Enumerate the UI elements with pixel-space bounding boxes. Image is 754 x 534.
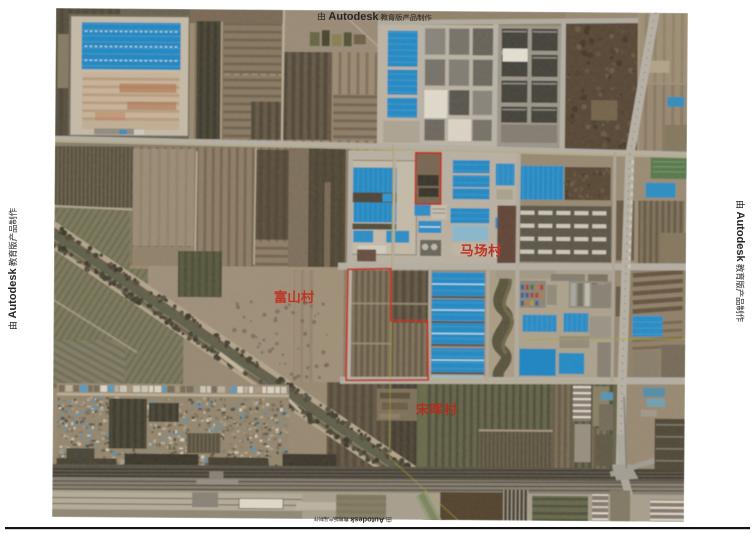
svg-text:由 Autodesk 教育版产品制作: 由 Autodesk 教育版产品制作 — [317, 11, 432, 24]
svg-text:马场村: 马场村 — [460, 242, 502, 258]
svg-text:由 Autodesk 教育版产品制作: 由 Autodesk 教育版产品制作 — [7, 207, 19, 330]
svg-text:宋晖村: 宋晖村 — [415, 402, 458, 417]
svg-text:由 Autodesk 教育版产品制作: 由 Autodesk 教育版产品制作 — [734, 200, 746, 323]
svg-text:富山村: 富山村 — [274, 289, 315, 305]
